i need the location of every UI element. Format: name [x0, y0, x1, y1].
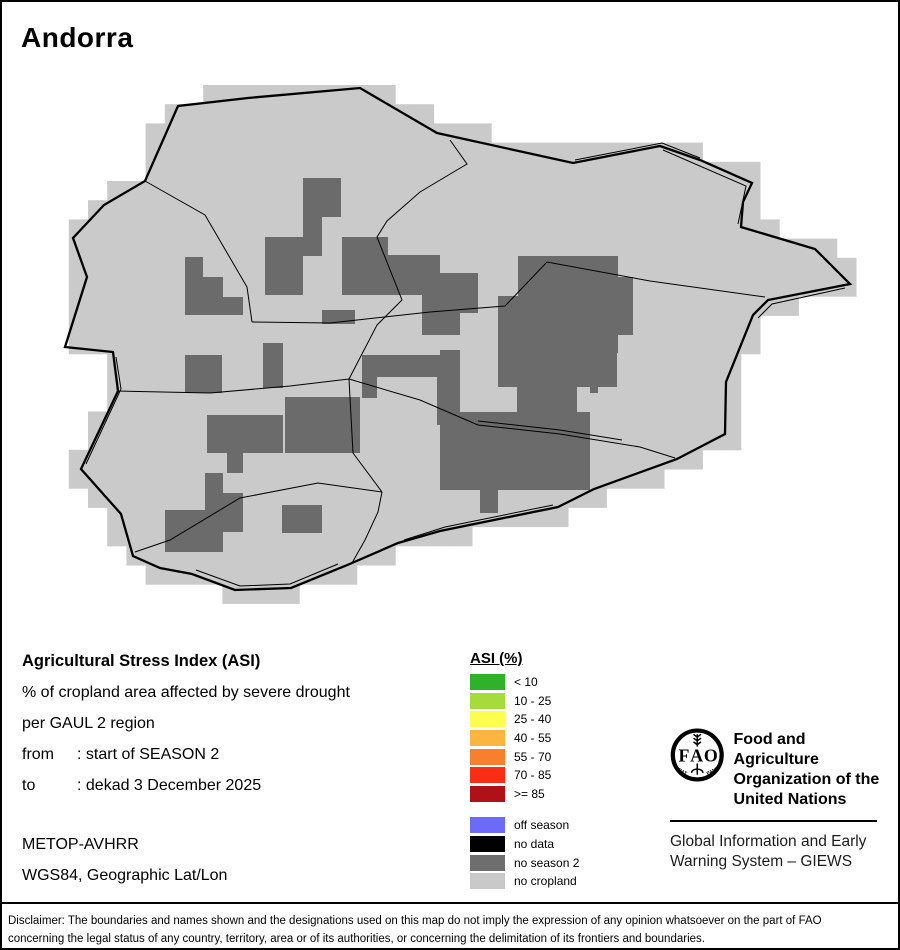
- legend: ASI (%) < 1010 - 2525 - 4040 - 5555 - 70…: [470, 650, 660, 891]
- disclaimer: Disclaimer: The boundaries and names sho…: [0, 902, 900, 944]
- svg-text:F: F: [678, 746, 689, 766]
- fao-org-line1: Food and Agriculture: [734, 730, 885, 770]
- fao-org-line2: Organization of the: [734, 770, 885, 790]
- fao-divider: [670, 820, 877, 822]
- legend-extra-row: off season: [470, 816, 660, 835]
- legend-class-row: 40 - 55: [470, 729, 660, 748]
- from-value: : start of SEASON 2: [77, 746, 219, 763]
- sensor-label: METOP-AVHRR: [22, 836, 227, 854]
- legend-class-swatch: [470, 693, 505, 709]
- legend-extra-row: no data: [470, 835, 660, 854]
- legend-class-row: 25 - 40: [470, 710, 660, 729]
- legend-extra-swatch: [470, 873, 505, 889]
- map-description: Agricultural Stress Index (ASI) % of cro…: [22, 652, 452, 808]
- legend-class-label: 25 - 40: [505, 712, 551, 726]
- source-block: METOP-AVHRR WGS84, Geographic Lat/Lon: [22, 836, 227, 898]
- legend-extra-swatch: [470, 836, 505, 852]
- legend-class-label: 55 - 70: [505, 750, 551, 764]
- legend-class-swatch: [470, 730, 505, 746]
- legend-class-row: >= 85: [470, 785, 660, 804]
- asi-heading: Agricultural Stress Index (ASI): [22, 652, 452, 671]
- legend-class-row: 55 - 70: [470, 747, 660, 766]
- legend-class-row: 10 - 25: [470, 692, 660, 711]
- legend-class-label: < 10: [505, 675, 538, 689]
- svg-text:A: A: [690, 746, 703, 766]
- legend-extra-swatch: [470, 817, 505, 833]
- disclaimer-line2: concerning the legal status of any count…: [8, 930, 892, 948]
- fao-block: F A O FIAT PANIS Food and Agriculture Or…: [670, 726, 885, 872]
- legend-class-row: < 10: [470, 673, 660, 692]
- legend-class-row: 70 - 85: [470, 766, 660, 785]
- legend-class-swatch: [470, 711, 505, 727]
- legend-class-label: >= 85: [505, 787, 545, 801]
- legend-extra-label: no data: [505, 837, 554, 851]
- fao-logo-icon: F A O FIAT PANIS: [670, 726, 725, 784]
- period-to: to: dekad 3 December 2025: [22, 777, 452, 795]
- giews-line1: Global Information and Early: [670, 832, 885, 852]
- legend-title: ASI (%): [470, 650, 660, 667]
- legend-extra-swatch: [470, 855, 505, 871]
- legend-class-swatch: [470, 674, 505, 690]
- legend-class-swatch: [470, 786, 505, 802]
- legend-extra-list: off seasonno datano season 2no cropland: [470, 816, 660, 890]
- from-label: from: [22, 746, 77, 764]
- disclaimer-line1: Disclaimer: The boundaries and names sho…: [8, 912, 892, 930]
- projection-label: WGS84, Geographic Lat/Lon: [22, 867, 227, 885]
- fao-org-name: Food and Agriculture Organization of the…: [725, 726, 885, 810]
- asi-subtitle-2: per GAUL 2 region: [22, 715, 452, 733]
- page-title: Andorra: [21, 22, 133, 54]
- asi-subtitle-1: % of cropland area affected by severe dr…: [22, 684, 452, 702]
- legend-gap: [470, 803, 660, 816]
- giews-line2: Warning System – GIEWS: [670, 852, 885, 872]
- legend-extra-label: off season: [505, 818, 569, 832]
- period-from: from: start of SEASON 2: [22, 746, 452, 764]
- to-label: to: [22, 777, 77, 795]
- legend-extra-row: no season 2: [470, 853, 660, 872]
- legend-class-list: < 1010 - 2525 - 4040 - 5555 - 7070 - 85>…: [470, 673, 660, 803]
- legend-class-label: 40 - 55: [505, 731, 551, 745]
- to-value: : dekad 3 December 2025: [77, 777, 261, 794]
- svg-text:O: O: [704, 746, 718, 766]
- legend-extra-row: no cropland: [470, 872, 660, 891]
- fao-org-line3: United Nations: [734, 790, 885, 810]
- legend-extra-label: no season 2: [505, 856, 579, 870]
- legend-class-label: 70 - 85: [505, 768, 551, 782]
- legend-extra-label: no cropland: [505, 874, 577, 888]
- legend-class-swatch: [470, 767, 505, 783]
- giews-name: Global Information and Early Warning Sys…: [670, 832, 885, 872]
- legend-class-swatch: [470, 749, 505, 765]
- legend-class-label: 10 - 25: [505, 694, 551, 708]
